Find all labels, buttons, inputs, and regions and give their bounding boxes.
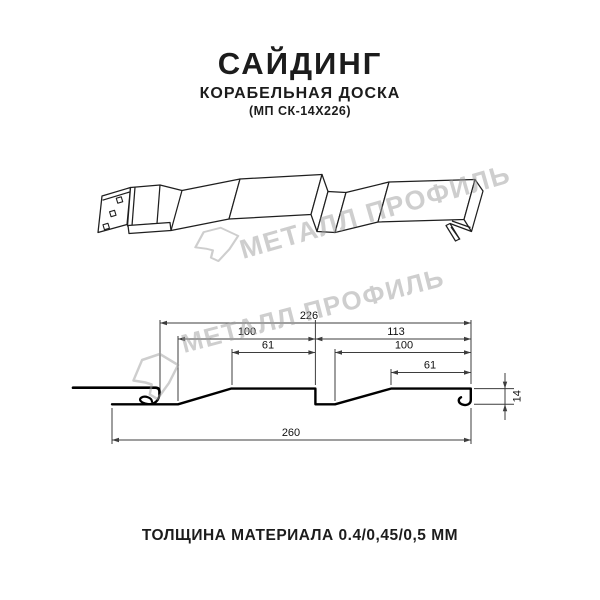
board1-flat-face [229,175,322,220]
thickness-note: ТОЛЩИНА МАТЕРИАЛА 0.4/0,45/0,5 ММ [0,527,600,545]
board1-slope-face [171,179,240,231]
dim-label-14: 14 [512,390,524,402]
dim-label-260: 260 [282,427,300,439]
cross-section-diagram: 226 100 113 61 100 61 260 14 [73,310,524,444]
main-profile-line [112,389,471,405]
product-spec-page: { "page": { "background": "#ffffff", "te… [0,0,600,600]
nail-hole [116,197,122,203]
watermark-logo-icon [133,354,178,399]
dim-label-61-right: 61 [424,360,436,372]
nail-hole [110,210,116,216]
watermark-logo-icon [195,228,238,261]
technical-drawing-canvas: 226 100 113 61 100 61 260 14 МЕТАЛЛ ПРОФ… [0,0,600,600]
dim-label-100-right: 100 [395,340,413,352]
upstand-to-slope-fold [160,185,182,191]
adjacent-panel-edge [73,388,160,394]
dim-label-113: 113 [387,326,405,338]
nail-hole [103,223,109,229]
section-profile-outline [73,388,471,405]
dim-label-61-left: 61 [262,340,274,352]
